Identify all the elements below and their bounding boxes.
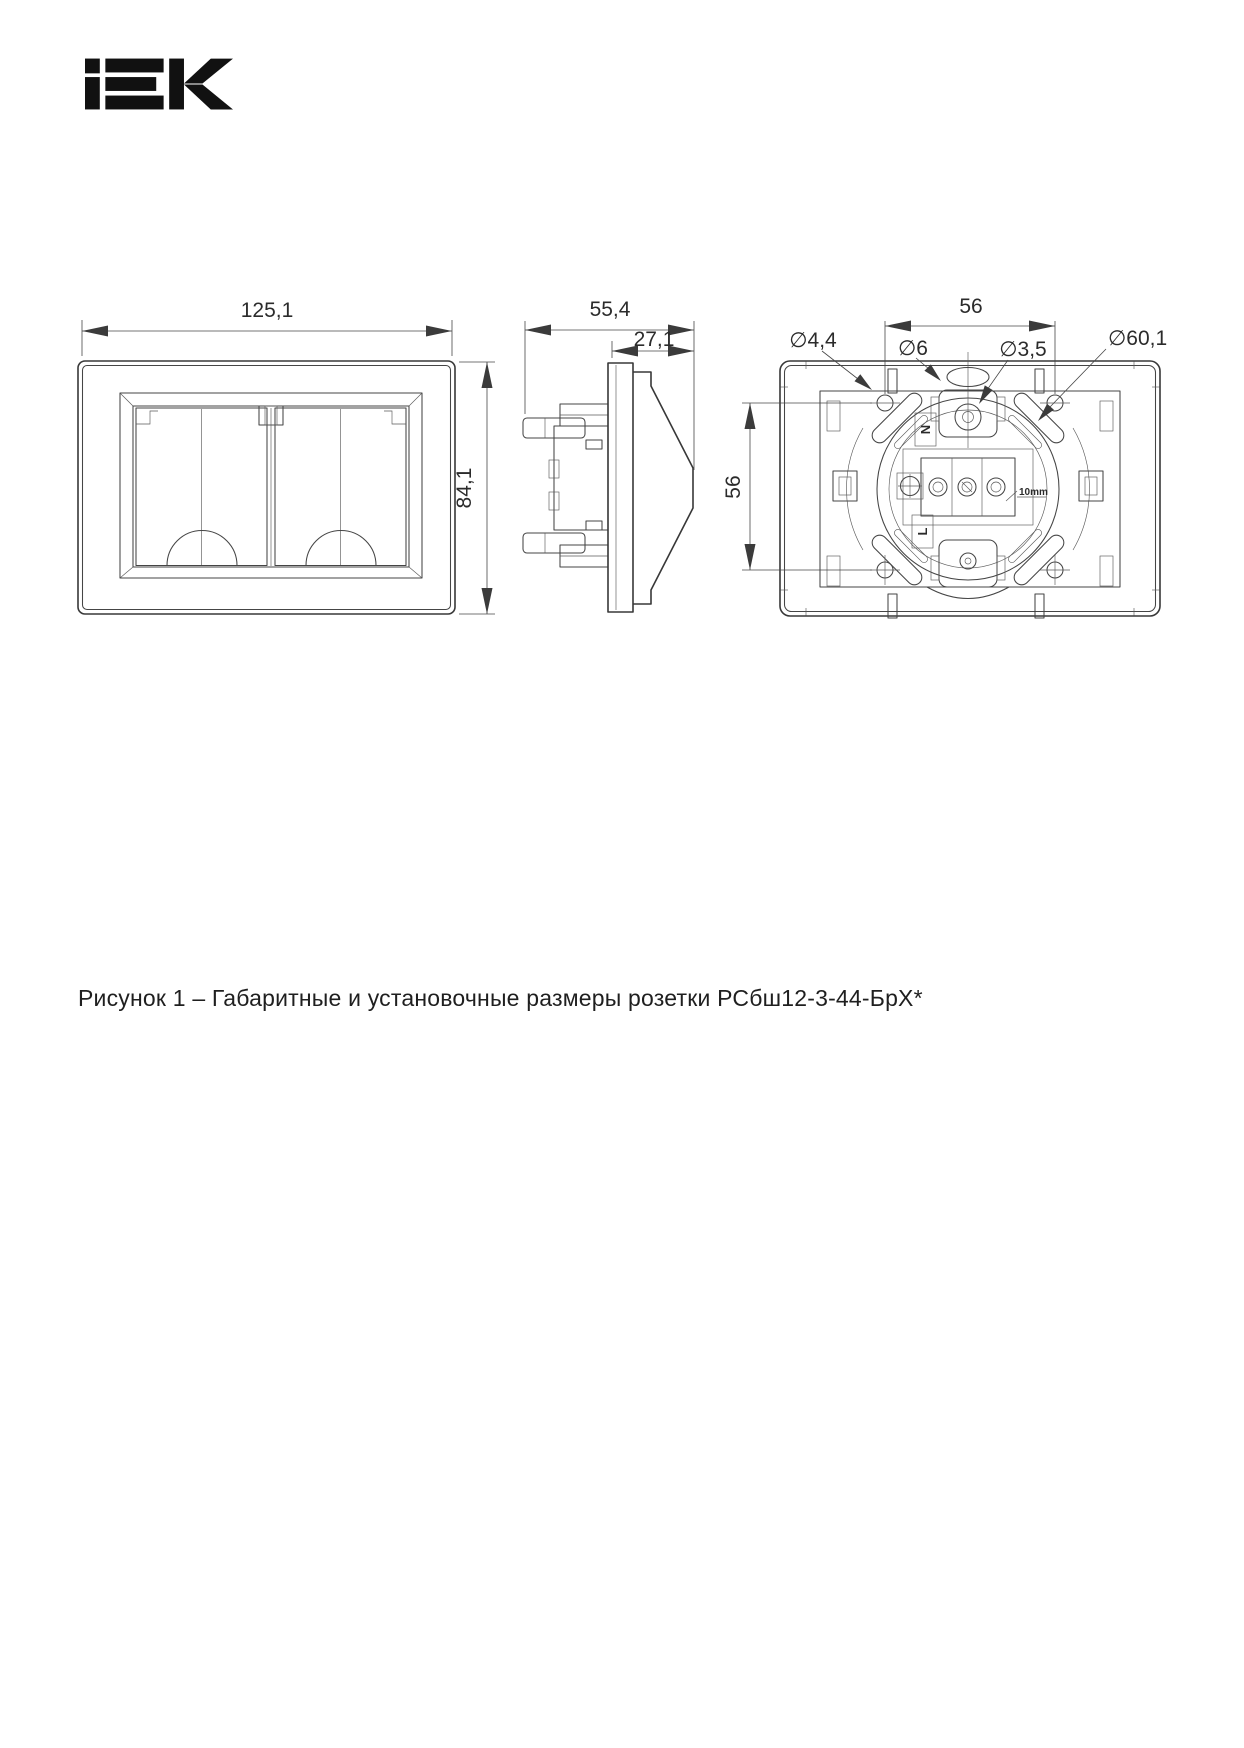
dia-screw-label: ∅3,5 [999,338,1047,361]
side-depth-label: 55,4 [590,298,631,321]
terminal-n-label: N [918,425,933,434]
front-height-label: 84,1 [453,468,476,509]
dia-claw-hole-label: ∅4,4 [789,329,837,352]
side-depth-dimension: 55,4 [525,298,694,470]
front-view: 125,1 84,1 [78,299,495,614]
callout-claw-hole: ∅4,4 [789,329,872,390]
front-width-dimension: 125,1 [82,299,452,356]
callout-mechanism-diameter: ∅60,1 [1038,327,1167,421]
hole-spacing-h-label: 56 [959,295,982,318]
dia-mechanism-label: ∅60,1 [1108,327,1167,350]
figure-caption: Рисунок 1 – Габаритные и установочные ра… [78,985,1078,1012]
right-thumb-notch [306,531,376,566]
hole-spacing-v-label: 56 [722,475,745,498]
front-width-label: 125,1 [241,299,294,322]
bottom-screw-boss [927,540,1009,599]
strip-length-label: 10mm [1019,487,1048,498]
left-thumb-notch [167,531,237,566]
back-hole-spacing-vertical: 56 [722,403,872,570]
side-view: 55,4 27,1 [523,298,694,612]
frame-edge [608,363,633,612]
mounting-plate [820,391,1120,587]
side-front-depth-label: 27,1 [634,328,675,351]
dimension-drawing: 125,1 84,1 [0,0,1244,700]
document-page: IEK [0,0,1244,1748]
cover-profile [633,372,693,604]
mechanism-body [554,426,608,530]
front-height-dimension: 84,1 [453,362,495,614]
lower-mounting-claw [523,533,585,553]
back-view: N L 10mm [722,295,1167,618]
terminal-l-label: L [915,527,930,535]
callout-slot: ∅6 [898,337,941,381]
terminal-block [897,449,1033,525]
strip-length-mark: 10mm [1006,487,1048,501]
callout-screw: ∅3,5 [979,338,1047,404]
dia-slot-label: ∅6 [898,337,928,360]
